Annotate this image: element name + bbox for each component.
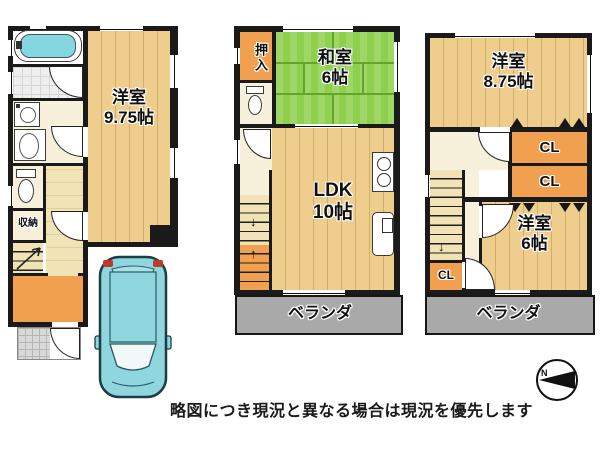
room-label-3f-small: 洋室6帖 — [482, 214, 587, 254]
window — [394, 42, 400, 92]
window — [425, 175, 430, 197]
folding-door-icon — [559, 118, 571, 127]
entrance-porch — [17, 327, 81, 360]
window — [8, 186, 13, 206]
cl1-label: CL — [512, 139, 587, 157]
folding-door-icon — [573, 118, 585, 127]
toilet-icon — [248, 95, 262, 115]
stairs-down-arrow-icon: ↓ — [250, 215, 257, 228]
ldk-label: LDK10帖 — [272, 180, 394, 225]
window — [100, 26, 143, 31]
window — [234, 48, 240, 64]
washbasin-icon — [14, 129, 46, 161]
disclaimer-note: 略図につき現況と異なる場合は現況を優先します — [170, 397, 533, 421]
toilet-icon — [18, 179, 34, 203]
oshiire-label: 押入 — [244, 36, 268, 80]
window — [8, 40, 13, 56]
window — [587, 55, 592, 113]
cl2-label: CL — [512, 173, 587, 191]
window — [283, 26, 353, 32]
stairs-3f — [430, 170, 462, 260]
western-room-975 — [88, 31, 170, 242]
tatami-room-label: 和室6帖 — [276, 48, 394, 88]
pillar-block — [150, 225, 178, 245]
toilet-icon — [16, 169, 36, 178]
stairs-down-arrow-icon: ↓ — [438, 240, 445, 253]
stairs-up-arrow-icon — [13, 243, 45, 273]
folding-door-icon — [523, 203, 535, 212]
cl3-label: CL — [430, 268, 462, 282]
entrance-hall — [13, 276, 83, 322]
room-label-1f: 洋室9.75帖 — [88, 88, 170, 128]
veranda-label-2f: ベランダ — [237, 305, 403, 324]
veranda-label-3f: ベランダ — [425, 305, 592, 324]
washing-machine-icon — [14, 102, 40, 127]
compass-north-label: N — [541, 368, 548, 378]
floor-plan-canvas: 洋室9.75帖 収納 — [0, 0, 600, 450]
sliding-door — [295, 124, 358, 128]
compass-icon: N — [533, 357, 581, 405]
window — [455, 33, 535, 38]
room-label-3f-large: 洋室8.75帖 — [430, 52, 587, 92]
entrance-door-arc — [50, 328, 80, 359]
bathtub-icon — [14, 30, 82, 62]
window — [8, 72, 13, 94]
folding-door-icon — [573, 203, 585, 212]
folding-door-icon — [559, 203, 571, 212]
folding-door-icon — [511, 118, 523, 127]
window — [170, 55, 178, 88]
stairs-up-arrow-icon: ↑ — [250, 247, 257, 260]
storage-label: 収納 — [12, 218, 44, 230]
window — [234, 140, 240, 164]
window — [170, 148, 178, 178]
toilet-icon — [246, 86, 264, 94]
car-icon — [92, 252, 174, 402]
